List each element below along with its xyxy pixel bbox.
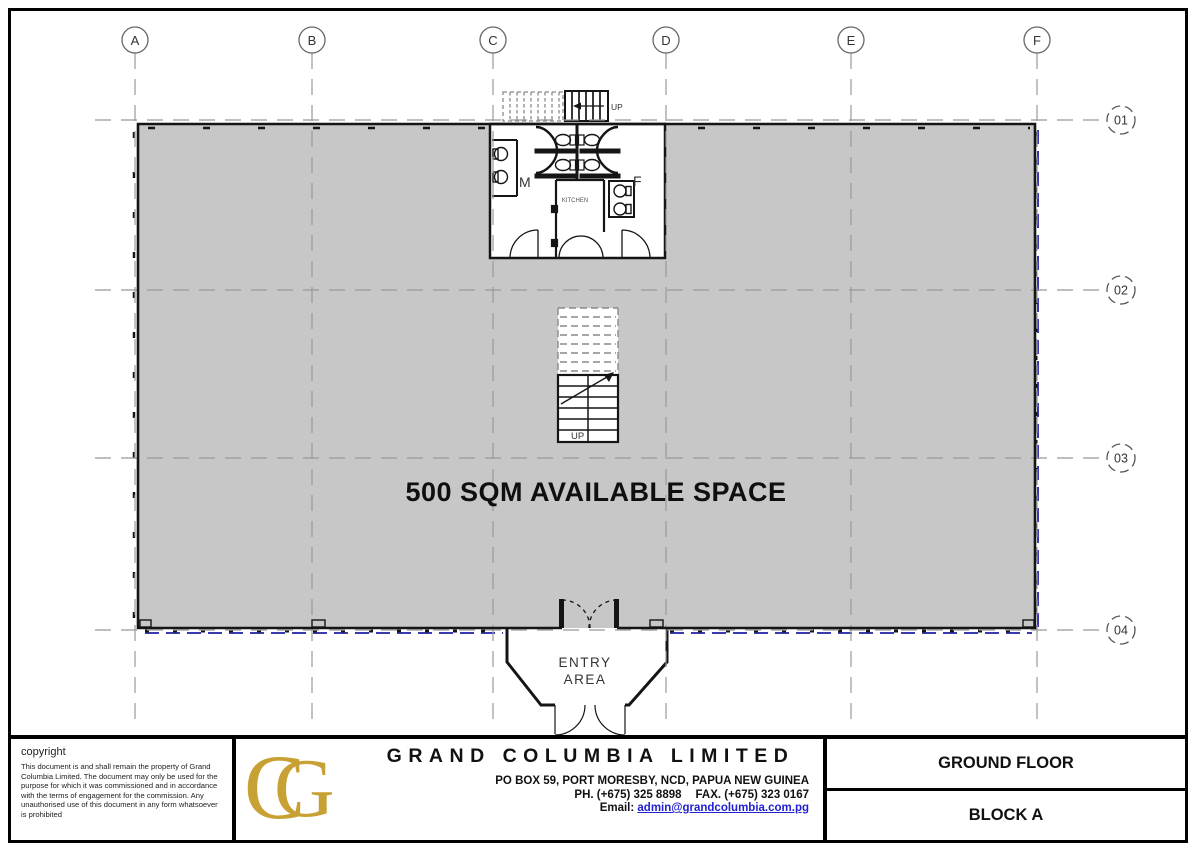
grid-column-markers: A B C D E F [122,27,1050,53]
floor-plan-canvas: M F KITCHEN UP [0,0,1194,735]
available-space-label: 500 SQM AVAILABLE SPACE [405,477,786,507]
female-room-label: F [633,173,642,189]
company-email-line: Email: admin@grandcolumbia.com.pg [358,802,809,816]
logo-letter-g: G [274,747,335,831]
grid-marker-03: 03 [1114,452,1128,466]
kitchen-label: KITCHEN [562,198,588,204]
email-label: Email: [600,802,635,814]
company-address: PO BOX 59, PORT MORESBY, NCD, PAPUA NEW … [358,775,809,789]
company-phone: PH. (+675) 325 8898 [574,789,681,801]
entry-area-label-2: AREA [564,672,607,687]
company-phone-fax: PH. (+675) 325 8898FAX. (+675) 323 0167 [358,789,809,803]
copyright-text: This document is and shall remain the pr… [21,762,219,820]
grid-marker-A: A [131,33,140,48]
stair-up-label: UP [571,431,584,442]
company-panel: C G GRAND COLUMBIA LIMITED PO BOX 59, PO… [236,739,827,840]
grid-marker-02: 02 [1114,284,1128,298]
central-stair: UP [558,308,618,442]
grid-marker-D: D [661,33,670,48]
external-stair: UP [503,91,623,121]
copyright-panel: copyright This document is and shall rem… [11,739,236,840]
company-logo: C G [236,739,358,840]
grid-marker-F: F [1033,33,1041,48]
company-fax: FAX. (+675) 323 0167 [696,789,809,801]
toilet-kitchen-block: M F KITCHEN [490,124,665,258]
drawing-sheet: M F KITCHEN UP [0,0,1194,849]
copyright-heading: copyright [21,746,222,758]
drawing-info-panel: GROUND FLOOR BLOCK A [827,739,1185,840]
company-address-block: PO BOX 59, PORT MORESBY, NCD, PAPUA NEW … [358,775,823,816]
external-stair-up-label: UP [611,102,623,112]
title-block: copyright This document is and shall rem… [11,735,1185,840]
entry-doors [555,705,625,735]
grid-marker-E: E [847,33,856,48]
drawing-title: GROUND FLOOR [827,739,1185,791]
male-room-label: M [519,174,531,190]
entry-area-label-1: ENTRY [558,655,611,670]
block-label: BLOCK A [827,791,1185,840]
grid-row-markers: 01 02 03 04 [1107,106,1135,644]
grid-marker-01: 01 [1114,114,1128,128]
grid-marker-C: C [488,33,497,48]
email-link[interactable]: admin@grandcolumbia.com.pg [637,802,809,814]
grid-marker-04: 04 [1114,624,1128,638]
grid-marker-B: B [308,33,317,48]
company-name: GRAND COLUMBIA LIMITED [358,745,823,768]
